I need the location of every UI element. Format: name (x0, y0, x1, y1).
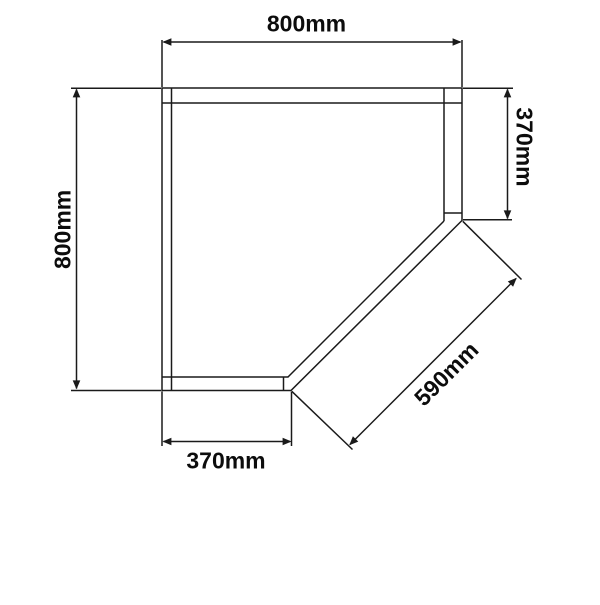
svg-text:370mm: 370mm (511, 107, 537, 186)
svg-text:370mm: 370mm (186, 447, 265, 473)
svg-text:800mm: 800mm (267, 11, 346, 37)
svg-text:800mm: 800mm (49, 190, 75, 269)
